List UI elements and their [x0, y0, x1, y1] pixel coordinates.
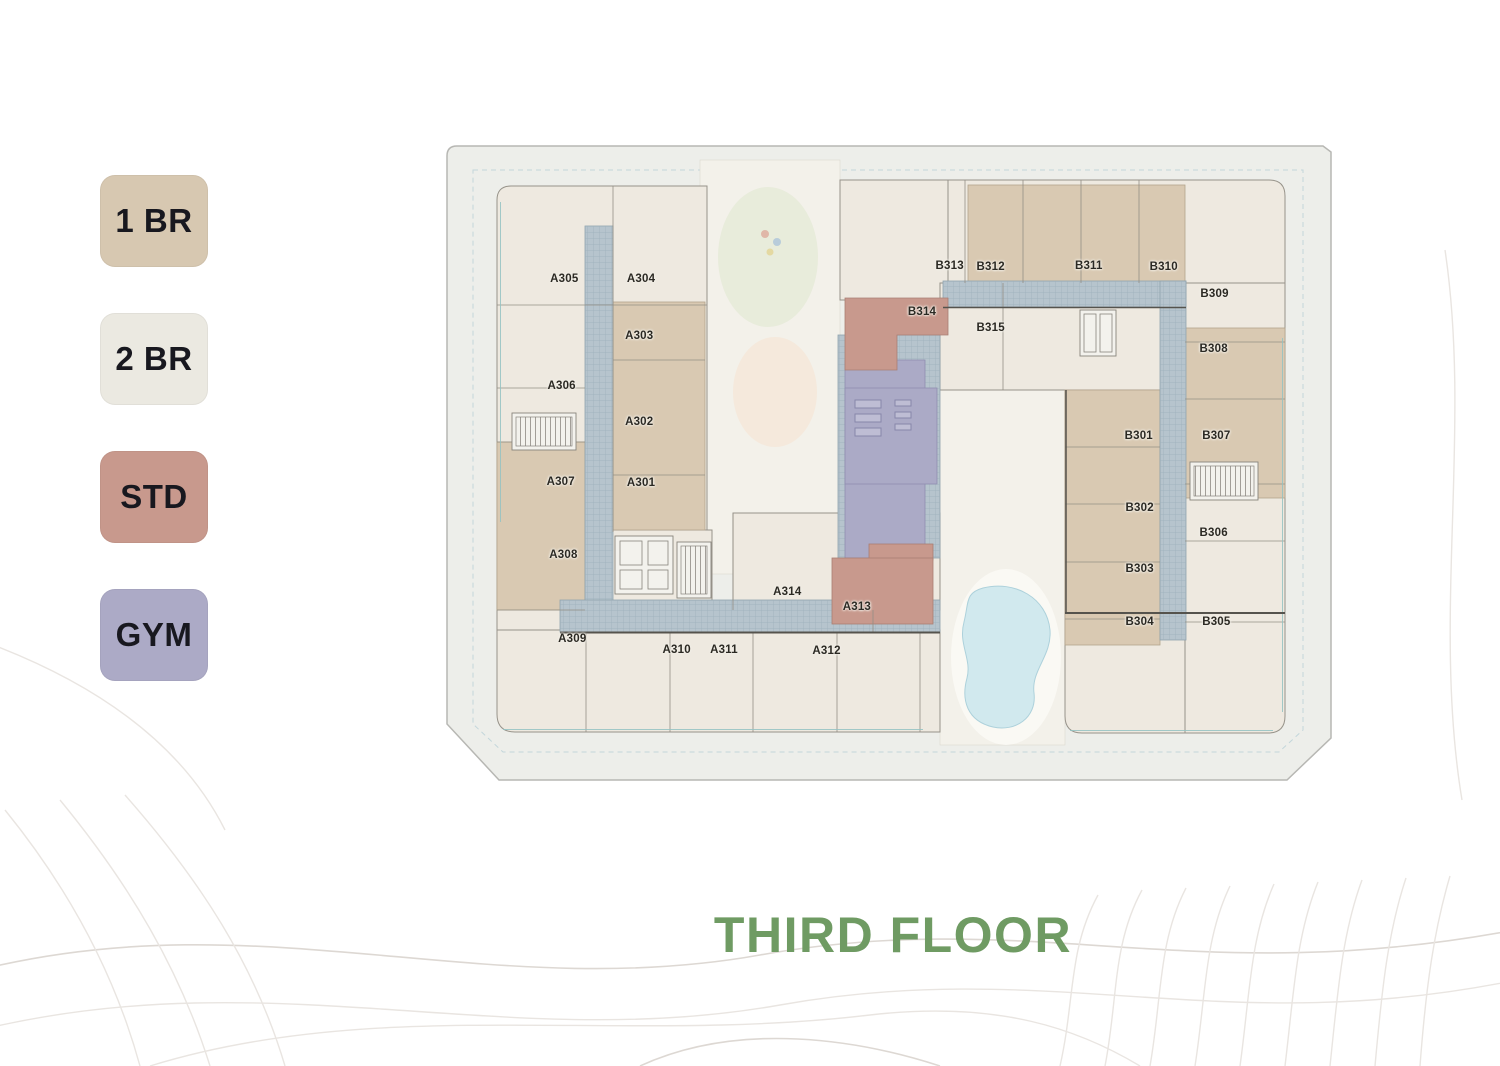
unit-label-b313: B313 [935, 260, 963, 272]
page: 1 BR2 BRSTDGYM [0, 0, 1500, 1066]
unit-label-a303: A303 [625, 330, 653, 342]
unit-label-a306: A306 [547, 380, 575, 392]
unit-label-b306: B306 [1200, 527, 1228, 539]
unit-label-b309: B309 [1200, 288, 1228, 300]
unit-label-b303: B303 [1125, 563, 1153, 575]
unit-label-b304: B304 [1125, 616, 1153, 628]
unit-label-b308: B308 [1200, 343, 1228, 355]
legend-label: STD [120, 478, 188, 516]
legend-label: GYM [116, 616, 193, 654]
legend-label: 1 BR [115, 202, 192, 240]
unit-label-a302: A302 [625, 416, 653, 428]
unit-label-b307: B307 [1202, 430, 1230, 442]
unit-label-b310: B310 [1150, 261, 1178, 273]
unit-label-a313: A313 [843, 601, 871, 613]
unit-label-a312: A312 [812, 645, 840, 657]
unit-label-b314: B314 [908, 306, 936, 318]
unit-label-a308: A308 [549, 549, 577, 561]
unit-label-a304: A304 [627, 273, 655, 285]
floor-plan: A305A304A303A306A302A307A301A308A309A310… [443, 142, 1335, 783]
unit-label-a309: A309 [558, 633, 586, 645]
legend-item-1br: 1 BR [100, 175, 208, 267]
unit-label-b302: B302 [1125, 502, 1153, 514]
legend-item-gym: GYM [100, 589, 208, 681]
unit-label-b315: B315 [977, 322, 1005, 334]
legend-item-std: STD [100, 451, 208, 543]
legend-label: 2 BR [115, 340, 192, 378]
unit-label-a311: A311 [710, 644, 738, 656]
unit-label-a307: A307 [547, 476, 575, 488]
unit-label-b305: B305 [1202, 616, 1230, 628]
floor-title: THIRD FLOOR [714, 906, 1072, 964]
unit-label-b301: B301 [1125, 430, 1153, 442]
unit-labels: A305A304A303A306A302A307A301A308A309A310… [443, 142, 1335, 783]
unit-label-b311: B311 [1075, 260, 1103, 272]
legend: 1 BR2 BRSTDGYM [100, 175, 208, 681]
unit-label-a305: A305 [550, 273, 578, 285]
unit-label-a301: A301 [627, 477, 655, 489]
unit-label-b312: B312 [977, 261, 1005, 273]
unit-label-a314: A314 [773, 586, 801, 598]
unit-label-a310: A310 [663, 644, 691, 656]
legend-item-2br: 2 BR [100, 313, 208, 405]
